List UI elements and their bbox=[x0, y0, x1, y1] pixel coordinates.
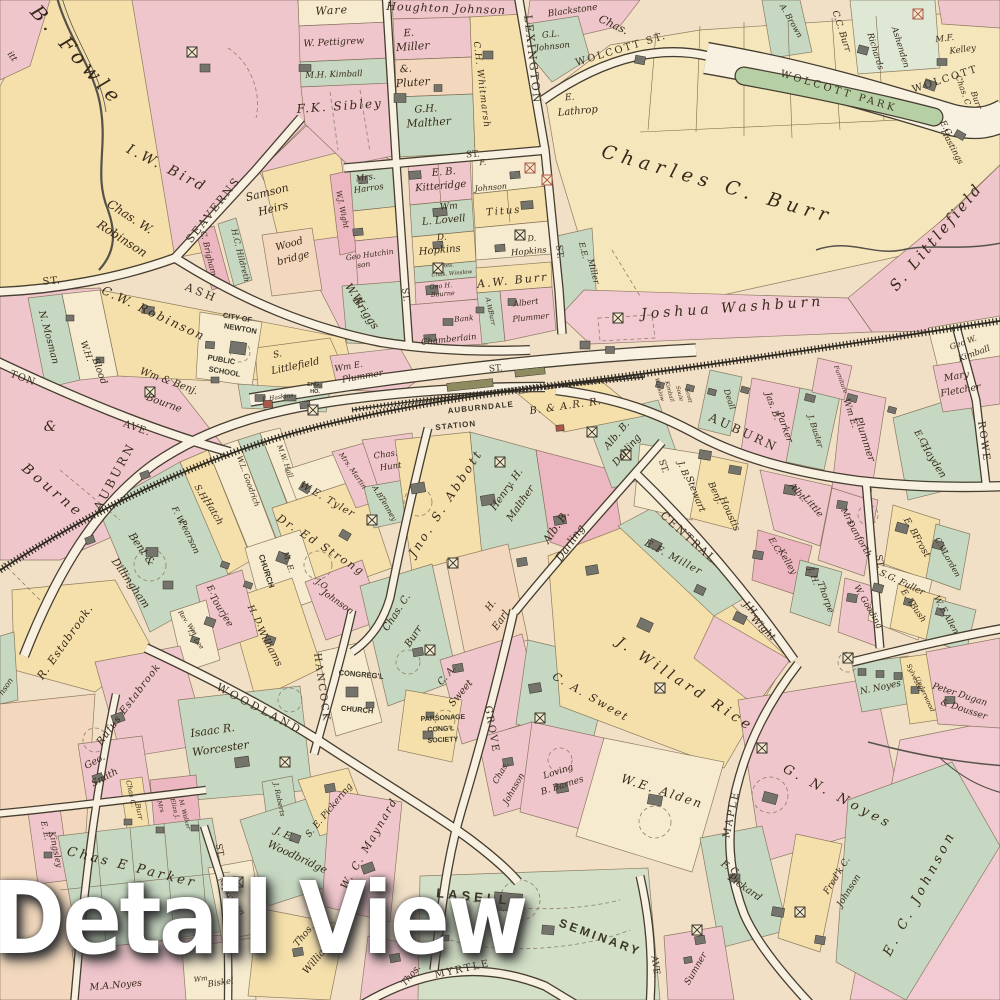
parcel-owner-label: & bbox=[44, 419, 56, 435]
outbuilding-symbol bbox=[535, 713, 545, 723]
street-label: ST. bbox=[553, 244, 564, 259]
building bbox=[409, 170, 422, 179]
building bbox=[510, 171, 521, 179]
street-label: ST. bbox=[489, 363, 504, 374]
building bbox=[580, 341, 590, 349]
building bbox=[346, 687, 358, 697]
building bbox=[858, 669, 866, 676]
building bbox=[937, 59, 947, 66]
building bbox=[410, 482, 426, 494]
building bbox=[124, 819, 132, 825]
outbuilding-symbol bbox=[495, 457, 505, 467]
outbuilding-symbol bbox=[587, 427, 597, 437]
building bbox=[200, 64, 210, 72]
building bbox=[211, 377, 219, 383]
parcel-owner-label: &. bbox=[399, 64, 412, 76]
outbuilding-symbol bbox=[913, 9, 923, 19]
building bbox=[698, 450, 711, 461]
building bbox=[516, 557, 527, 567]
parcel-owner-label: Bank bbox=[453, 313, 475, 324]
outbuilding-symbol bbox=[367, 515, 377, 525]
building bbox=[443, 319, 453, 326]
parcel-owner-label: D. bbox=[436, 233, 448, 244]
parcel-owner-label: M.H. Kimball bbox=[304, 69, 363, 81]
street-label: ST. bbox=[42, 275, 61, 288]
outbuilding-symbol bbox=[448, 558, 458, 568]
parcel-owner-label: E. bbox=[402, 28, 414, 40]
parcel-owner-label: Pluter bbox=[394, 75, 431, 90]
building bbox=[771, 907, 784, 918]
parcel-owner-label: E. B. bbox=[430, 166, 456, 179]
building bbox=[585, 565, 598, 576]
street-label: ST. bbox=[466, 150, 481, 161]
building bbox=[205, 341, 215, 349]
building bbox=[876, 671, 884, 678]
building bbox=[684, 956, 693, 963]
building bbox=[229, 341, 247, 355]
building bbox=[476, 307, 484, 313]
building bbox=[434, 85, 442, 92]
parcel-owner-label: G.H. bbox=[414, 103, 437, 116]
outbuilding-symbol bbox=[515, 230, 525, 240]
place-label: ENG. bbox=[307, 382, 321, 388]
outbuilding-symbol bbox=[757, 743, 767, 753]
outbuilding-symbol bbox=[692, 925, 702, 935]
building bbox=[66, 315, 74, 321]
outbuilding-symbol bbox=[425, 645, 435, 655]
building bbox=[394, 94, 406, 103]
atlas-map-screenshot: B. FowleittWareW. PettigrewM.H. KimballF… bbox=[0, 0, 1000, 1000]
building bbox=[483, 51, 493, 59]
parcel-owner-label: D. bbox=[526, 234, 536, 244]
outbuilding-symbol bbox=[187, 47, 197, 57]
parcel-owner-label: Ware bbox=[315, 3, 348, 18]
detail-view-overlay: Detail View bbox=[0, 860, 526, 977]
outbuilding-symbol bbox=[655, 683, 665, 693]
building bbox=[412, 647, 423, 657]
outbuilding-symbol bbox=[795, 907, 805, 917]
parcel-owner-label: Res. bbox=[441, 262, 455, 269]
building bbox=[694, 935, 705, 945]
place-label: CONG'L bbox=[427, 725, 455, 733]
building bbox=[353, 228, 364, 236]
building bbox=[728, 465, 741, 475]
building bbox=[528, 683, 541, 694]
map-canvas: B. FowleittWareW. PettigrewM.H. KimballF… bbox=[0, 0, 1000, 1000]
building bbox=[324, 783, 335, 793]
outbuilding-symbol bbox=[542, 175, 552, 185]
place-label: HO. bbox=[310, 389, 320, 395]
outbuilding-symbol bbox=[525, 163, 535, 173]
parcel-owner-label: E. bbox=[564, 93, 575, 104]
building bbox=[634, 55, 645, 65]
building bbox=[542, 925, 555, 935]
outbuilding-symbol bbox=[280, 757, 290, 767]
outbuilding-symbol bbox=[843, 653, 853, 663]
street-label: ST. bbox=[399, 287, 411, 302]
building bbox=[606, 347, 615, 354]
building bbox=[163, 581, 173, 589]
parcel-owner-label: G.L. bbox=[542, 29, 560, 41]
parcel-owner-label: Wm bbox=[440, 201, 459, 213]
outbuilding-symbol bbox=[308, 405, 318, 415]
parcel-owner-label: Miller bbox=[395, 39, 431, 54]
building bbox=[495, 244, 506, 252]
building bbox=[752, 550, 763, 560]
building bbox=[521, 200, 534, 209]
parcel-owner-label: son bbox=[356, 259, 370, 270]
building bbox=[556, 425, 564, 432]
building bbox=[814, 935, 825, 945]
building bbox=[234, 756, 249, 768]
outbuilding-symbol bbox=[613, 313, 623, 323]
building bbox=[156, 827, 164, 833]
